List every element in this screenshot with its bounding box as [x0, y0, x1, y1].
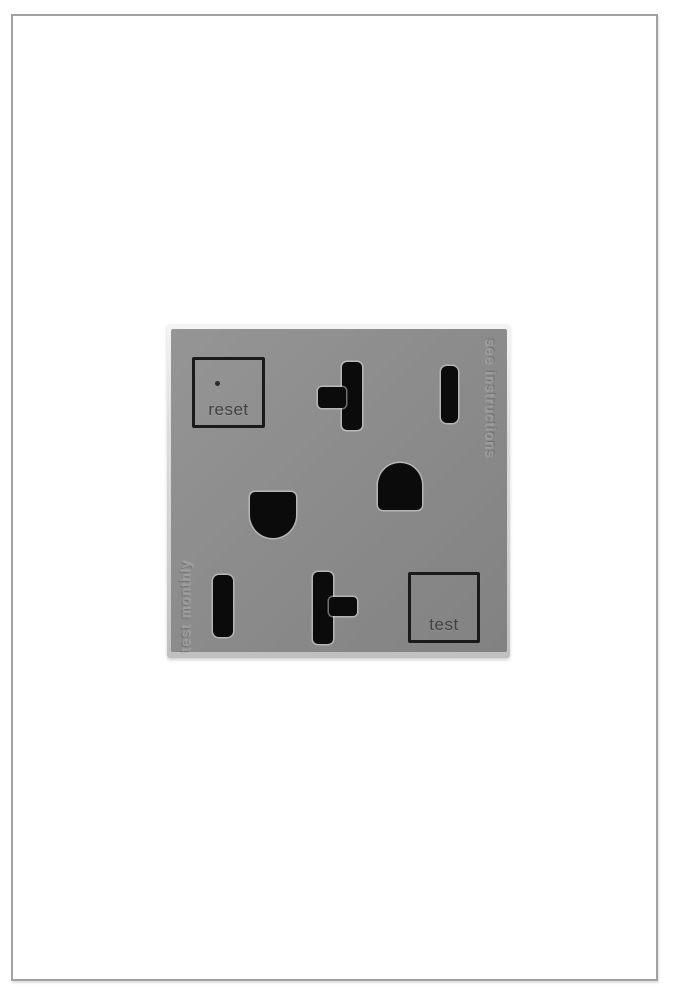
top-hot-slot — [441, 366, 458, 423]
reset-button-label: reset — [195, 400, 262, 420]
bottom-ground-hole — [250, 492, 296, 538]
outlet-face: reset test see instructions — [171, 329, 507, 652]
test-button[interactable]: test — [408, 572, 480, 643]
top-neutral-slot-arm — [318, 387, 346, 408]
test-button-label: test — [411, 615, 477, 635]
product-photo: reset test see instructions — [0, 0, 673, 1000]
reset-button[interactable]: reset — [192, 357, 265, 428]
led-indicator-dot — [215, 381, 220, 386]
top-ground-hole — [378, 463, 422, 510]
embossed-text-see-instructions: see instructions — [483, 339, 499, 499]
gfci-outlet-plate: reset test see instructions — [167, 324, 510, 658]
bottom-neutral-slot-arm — [329, 597, 357, 616]
bottom-hot-slot — [213, 575, 233, 637]
embossed-text-test-monthly: test monthly — [177, 537, 193, 652]
